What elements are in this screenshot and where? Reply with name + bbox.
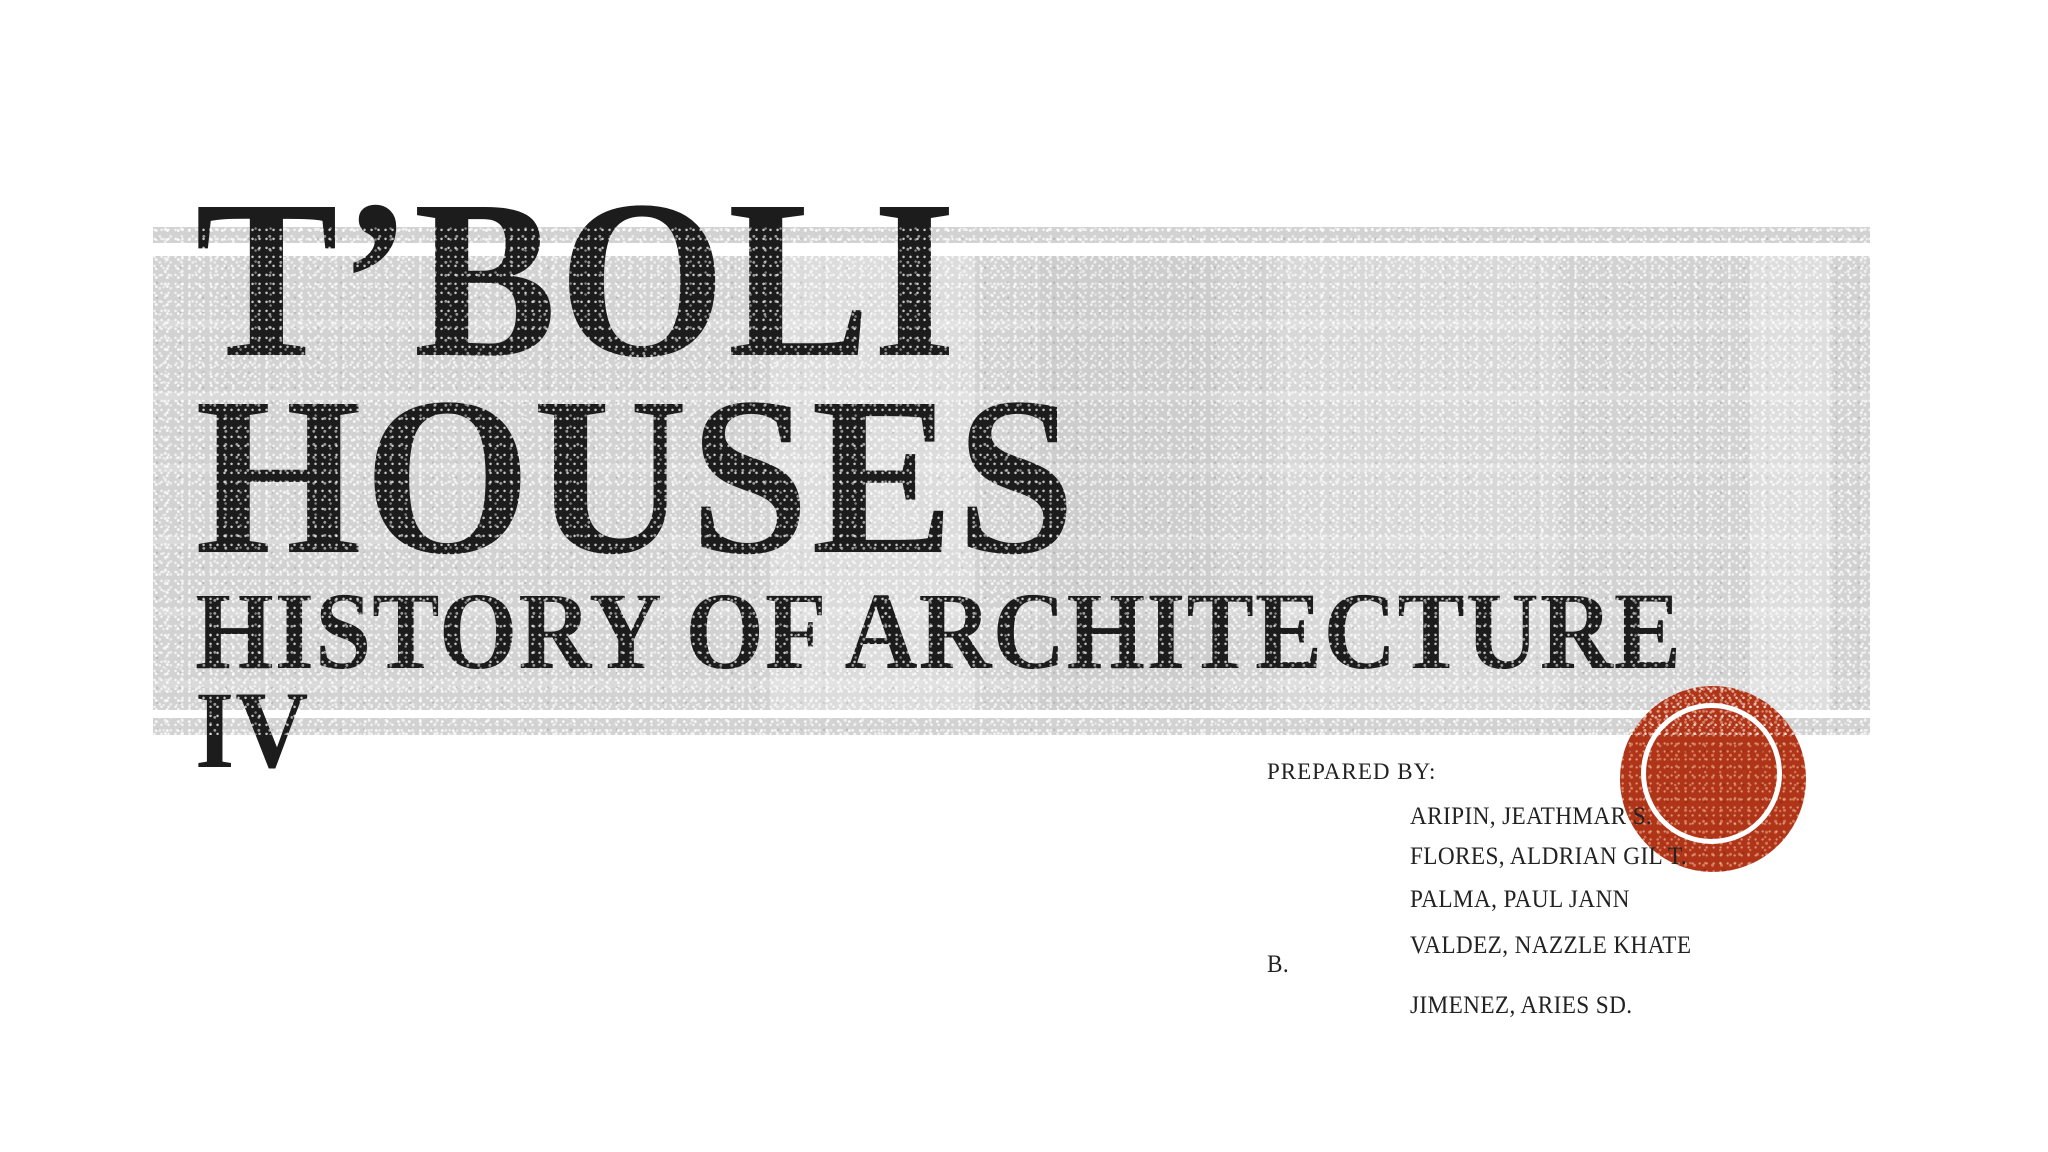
name-line: ARIPIN, JEATHMAR S. [1410,804,1652,829]
prepared-by-label: PREPARED BY: [1267,760,1436,783]
name-line: VALDEZ, NAZZLE KHATE [1410,933,1691,958]
stamp-circle-ring [1641,703,1782,844]
name-line: FLORES, ALDRIAN GIL T. [1410,844,1687,869]
band-light-column [1750,256,1830,710]
title-line-2: HOUSES [195,363,1077,589]
band-bottom-strip [153,718,1870,735]
name-line-wrap: B. [1267,952,1289,977]
subtitle-line-2: IV [195,675,309,785]
subtitle-line-1: HISTORY OF ARCHITECTURE [195,576,1682,686]
name-line: PALMA, PAUL JANN [1410,887,1630,912]
presentation-slide: T’BOLI HOUSES HISTORY OF ARCHITECTURE IV… [0,0,2048,1152]
name-line: JIMENEZ, ARIES SD. [1410,993,1632,1018]
